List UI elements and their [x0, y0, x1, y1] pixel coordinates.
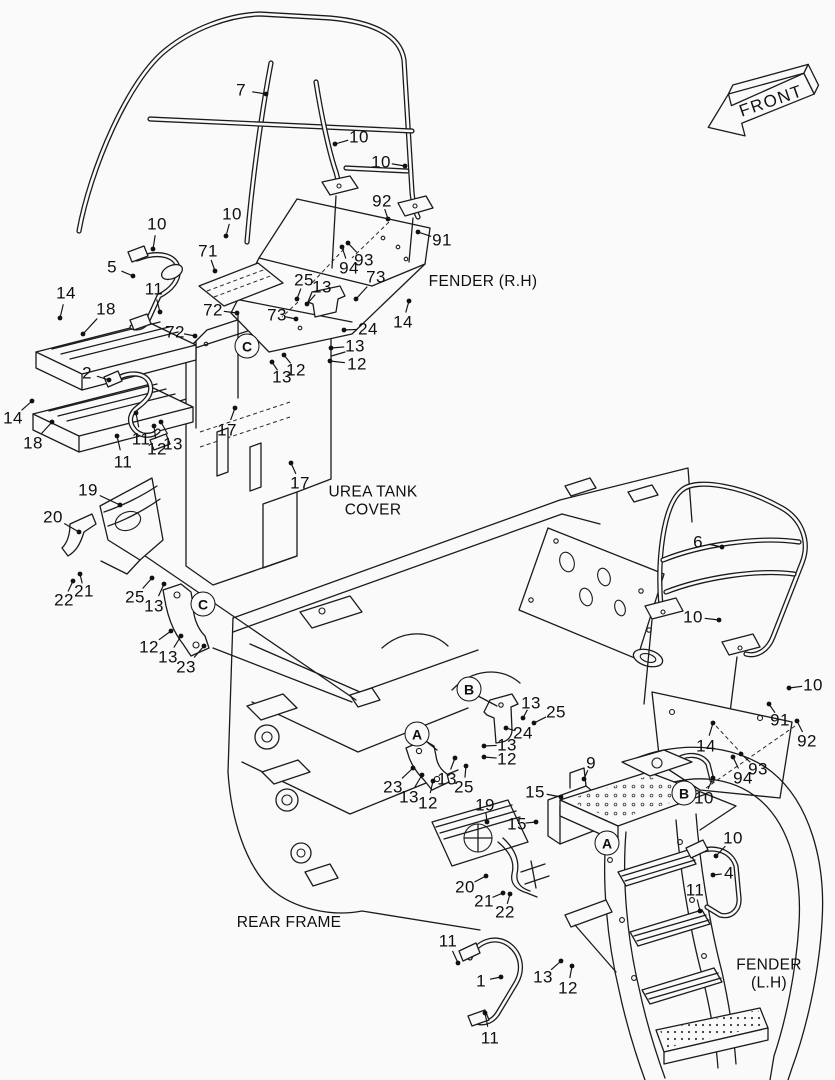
callout-label: 14 — [56, 285, 76, 302]
callout-label: 25 — [294, 272, 314, 289]
callout-label: 13 — [533, 969, 553, 986]
callout-label: 19 — [475, 797, 495, 814]
callout-label: 10 — [349, 129, 369, 146]
callout-label: 13 — [272, 369, 292, 386]
callout-label: 18 — [23, 435, 43, 452]
callout-label: 25 — [546, 704, 566, 721]
callout-label: 13 — [144, 598, 164, 615]
callout-label: 7 — [236, 82, 246, 99]
assembly-ref-A: A — [595, 831, 620, 856]
callout-label: 10 — [222, 206, 242, 223]
caption-fender-lh: FENDER (L.H) — [736, 957, 802, 994]
callout-label: 72 — [203, 302, 223, 319]
callout-label: 91 — [432, 232, 452, 249]
callout-label: 22 — [495, 904, 515, 921]
callout-label: 94 — [339, 260, 359, 277]
callout-label: 22 — [54, 592, 74, 609]
callout-label: 11 — [686, 882, 704, 899]
callout-label: 12 — [558, 980, 578, 997]
assembly-ref-B: B — [672, 781, 697, 806]
callout-label: 94 — [733, 770, 753, 787]
callout-label: 14 — [3, 410, 23, 427]
callout-label: 14 — [696, 738, 716, 755]
callout-label: 10 — [683, 609, 703, 626]
callout-label: 92 — [797, 733, 817, 750]
callout-label: 19 — [78, 482, 98, 499]
callout-label: 15 — [525, 784, 545, 801]
callout-label: 12 — [347, 356, 367, 373]
callout-label: 5 — [107, 259, 117, 276]
callout-label: 14 — [393, 314, 413, 331]
callout-label: 91 — [770, 712, 790, 729]
callout-label: 92 — [372, 193, 392, 210]
callout-label: 13 — [312, 279, 332, 296]
caption-fender-rh: FENDER (R.H) — [429, 273, 538, 291]
callout-label: 10 — [803, 677, 823, 694]
callout-label: 13 — [521, 695, 541, 712]
callout-label: 11 — [439, 933, 457, 950]
assembly-ref-B: B — [457, 677, 482, 702]
assembly-ref-C: C — [191, 592, 216, 617]
callout-label: 11 — [481, 1030, 499, 1047]
callout-label: 20 — [455, 879, 475, 896]
callout-label: 1 — [476, 973, 486, 990]
callout-label: 21 — [74, 583, 94, 600]
caption-urea-tank-cover: UREA TANK COVER — [328, 484, 417, 521]
callout-label: 12 — [497, 751, 517, 768]
callout-label: 11 — [114, 454, 132, 471]
callout-label: 13 — [163, 436, 183, 453]
callout-label: 12 — [418, 795, 438, 812]
callout-label: 10 — [147, 216, 167, 233]
callout-label: 21 — [474, 893, 494, 910]
callout-label: 13 — [158, 649, 178, 666]
callout-label: 23 — [176, 659, 196, 676]
callout-label: 11 — [145, 281, 163, 298]
callout-label: 4 — [724, 865, 734, 882]
assembly-ref-C: C — [235, 334, 260, 359]
callout-label: 25 — [125, 589, 145, 606]
annotation-layer: 7101092919394732513101071514181172737212… — [0, 0, 835, 1080]
callout-label: 6 — [693, 534, 703, 551]
callout-label: 20 — [43, 509, 63, 526]
callout-label: 17 — [217, 422, 237, 439]
callout-label: 12 — [139, 639, 159, 656]
callout-label: 73 — [366, 269, 386, 286]
parts-diagram-page: FRONT 7101092919394732513101071514181172… — [0, 0, 835, 1080]
callout-label: 17 — [290, 475, 310, 492]
callout-label: 10 — [723, 830, 743, 847]
assembly-ref-A: A — [405, 722, 430, 747]
callout-label: 9 — [586, 755, 596, 772]
callout-label: 13 — [399, 789, 419, 806]
callout-label: 24 — [358, 321, 378, 338]
callout-label: 10 — [694, 790, 714, 807]
callout-label: 10 — [371, 154, 391, 171]
callout-label: 25 — [454, 779, 474, 796]
callout-label: 18 — [96, 301, 116, 318]
caption-rear-frame: REAR FRAME — [237, 914, 342, 932]
callout-label: 71 — [198, 243, 218, 260]
callout-label: 72 — [165, 324, 185, 341]
callout-label: 73 — [267, 307, 287, 324]
callout-label: 15 — [507, 816, 527, 833]
callout-label: 2 — [82, 365, 92, 382]
callout-label: 13 — [345, 338, 365, 355]
